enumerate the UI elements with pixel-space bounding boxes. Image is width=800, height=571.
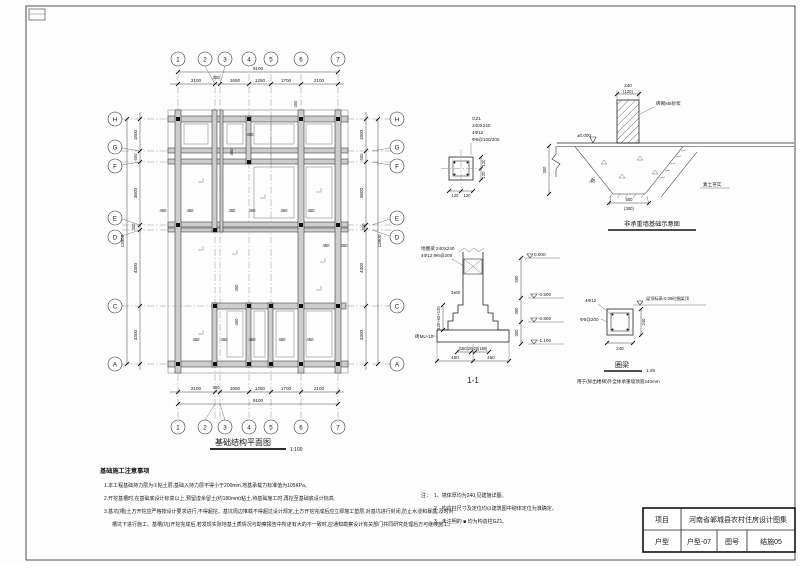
- grid-bubble-C: C: [395, 304, 400, 311]
- dim-label: 1800: [133, 129, 138, 140]
- dim-label: 300: [361, 223, 366, 231]
- level-1: -0.500: [538, 292, 551, 297]
- dim-label: 240: [641, 318, 646, 326]
- pit-outline: [575, 147, 683, 195]
- nb-title-text: 非承重墙基础示意图: [624, 220, 680, 228]
- dim-label: 4300: [359, 262, 364, 273]
- grid-bubble-6: 6: [299, 57, 303, 64]
- dim-label: 2100: [191, 78, 202, 83]
- grid-bubble-E: E: [113, 216, 117, 223]
- grid-bubble-F: F: [395, 164, 399, 171]
- dim-450: 450: [234, 318, 239, 326]
- nb-angle-label: 45°: [589, 175, 597, 183]
- ring-beam-detail: 4Φ12 Φ6@200 梁顶标高-0.05砼圈梁顶 240 240 圈梁 1:2…: [577, 295, 706, 385]
- grid-bubble-7: 7: [336, 425, 340, 432]
- note-3-line1: 3.基坑(槽)土方开挖应严格按设计要求进行,不得超挖。基坑周边堆载不得超过设计规…: [104, 508, 453, 515]
- dim-label: 300: [213, 75, 221, 80]
- grid-bubbles-bottom: 1 2 3 4 5 6 7: [171, 404, 345, 434]
- gz1-size: 240X240: [472, 123, 491, 128]
- dim-label: 450: [451, 355, 459, 360]
- grid-bubble-1: 1: [176, 425, 180, 432]
- dim-label: 120+60+120: [436, 306, 441, 330]
- grid-bubble-2: 2: [203, 57, 207, 64]
- nb-level-label: ±0.000: [577, 133, 591, 138]
- nonbearing-foundation-detail: 240 (120) 砖砌M5砂浆 ±0.000 45° 素土夯实 500 (30…: [542, 83, 794, 230]
- grid-bubble-H: H: [113, 117, 117, 124]
- plan-scale: 1:100: [290, 447, 303, 453]
- titleblock-project: 河南省郸城县农村住房设计图集: [689, 515, 787, 524]
- ring-note: 用于(除出楼梯)外全体承重墙顶宽240mm: [577, 378, 660, 385]
- gz1-detail: GZ1 240X240 4Φ12 Φ6@100/200 120 120 120 …: [441, 116, 500, 198]
- titleblock-model: 户型-07: [687, 537, 711, 546]
- grid-bubble-3: 3: [223, 57, 227, 64]
- dim-label: 1650: [230, 386, 241, 391]
- s11-right-dims: 500 300 300: [514, 256, 523, 346]
- dim-label: 2100: [314, 386, 325, 391]
- remark-prefix: 注：: [421, 492, 431, 499]
- ring-rebar-label: 4Φ12: [585, 298, 597, 303]
- foundation-walls: [168, 110, 348, 373]
- dim-label: 1650: [230, 78, 241, 83]
- dim-450: 450: [279, 337, 287, 342]
- plan-title: 基础结构平面图 1:100: [210, 437, 303, 453]
- dim-450: 450: [341, 243, 349, 248]
- ring-level-note: 梁顶标高-0.05砼圈梁顶: [646, 295, 690, 302]
- dim-450: 450: [221, 337, 229, 342]
- dim-450: 450: [229, 208, 237, 213]
- level-2: -0.800: [538, 316, 551, 321]
- dim-label: 1700: [281, 386, 292, 391]
- dim-label: 1800: [359, 129, 364, 140]
- dims-right: 1800 600 3600 300 4300 3300 13900: [359, 112, 382, 370]
- gz1-columns: [176, 117, 340, 366]
- grid-bubble-4: 4: [247, 425, 251, 432]
- level-symbol: [637, 301, 643, 305]
- grid-bubble-G: G: [113, 145, 118, 152]
- dim-450: 450: [308, 208, 316, 213]
- dim-label: 500: [626, 197, 634, 202]
- dim-label: 3600: [359, 187, 364, 198]
- dim-label: 4300: [133, 262, 138, 273]
- border-corner-mark: [29, 9, 45, 20]
- dim-label: 600: [133, 153, 138, 161]
- dim-label: 1250: [255, 78, 266, 83]
- dim-label: 300: [514, 329, 519, 337]
- grid-bubble-C: C: [113, 304, 118, 311]
- dim-450: 450: [249, 208, 257, 213]
- dim-total-width: 9100: [253, 66, 264, 71]
- nb-soil-label: 素土夯实: [703, 181, 722, 188]
- dim-label: 300: [514, 307, 519, 315]
- dim-label: 1250: [255, 386, 266, 391]
- grid-bubble-D: D: [395, 235, 400, 242]
- dim-label: 120: [464, 193, 472, 198]
- ring-stirrup-label: Φ6@200: [580, 317, 599, 322]
- s11-beam-label-1: 地圈梁 240X240: [421, 245, 455, 252]
- dim-450: 450: [187, 208, 195, 213]
- dim-label: 3300: [359, 329, 364, 340]
- dim-450: 450: [307, 337, 315, 342]
- note-1: 1.本工程基础持力层为①粘土层,基础入持力层不得小于200mm,地基承载力标准值…: [104, 482, 310, 489]
- nb-title: 非承重墙基础示意图: [608, 220, 696, 230]
- dim-label: 120: [481, 159, 486, 167]
- dim-label: 3300: [133, 329, 138, 340]
- dim-total-width: 9100: [253, 398, 264, 403]
- gz1-rebar: 4Φ12: [472, 130, 484, 135]
- dim-label: 300: [213, 385, 221, 390]
- dim-label: 240: [624, 83, 632, 88]
- dim-label: 120: [452, 193, 460, 198]
- ring-scale: 1:25: [646, 368, 655, 373]
- dim-total-height: 13900: [377, 234, 382, 247]
- dim-label: 2100: [191, 386, 202, 391]
- grid-bubble-F: F: [113, 164, 117, 171]
- construction-notes: 基础施工注意事项 1.本工程基础持力层为①粘土层,基础入持力层不得小于200mm…: [99, 467, 453, 528]
- stepped-footing: [437, 252, 509, 330]
- note-3-line2: 槽坑下进行施工。基槽(坑)开挖完成后,若发现实际地基土质情况与勘察报告中所述有大…: [112, 521, 453, 528]
- s11-step-dim: 120+60+120: [436, 303, 445, 332]
- dim-450: 450: [160, 208, 168, 213]
- sheet-border: [26, 6, 795, 560]
- dims-top: 2100 300 1650 1250 1700 2100 9100: [170, 66, 344, 86]
- dim-450: 450: [323, 243, 331, 248]
- dim-450: 450: [293, 100, 298, 108]
- gz1-name: GZ1: [472, 116, 481, 121]
- break-line: [459, 248, 484, 252]
- nb-bottom-dim: 500 (300): [607, 196, 651, 211]
- dim-450: 450: [249, 337, 257, 342]
- dim-label: 450: [487, 355, 495, 360]
- dim-label: 3600: [133, 187, 138, 198]
- dim-label: 120: [481, 171, 486, 179]
- remark-1: 1、墙体厚均为240,见建施详图。: [434, 492, 507, 499]
- dim-450: 450: [193, 337, 201, 342]
- grid-axes: [122, 74, 392, 420]
- dim-450: 450: [229, 148, 234, 156]
- nb-depth-dim: 300: [542, 144, 551, 196]
- dim-450: 450: [247, 132, 255, 137]
- dim-label: 300: [131, 223, 136, 231]
- drawing-sheet: 450 450 450 450 450 450 450 450 450 450 …: [0, 0, 800, 566]
- grid-bubble-5: 5: [269, 57, 273, 64]
- nb-top-dim: 240 (120): [615, 83, 641, 100]
- grid-bubble-E: E: [395, 216, 399, 223]
- s11-brick-label: 砖MU-10: [415, 333, 434, 340]
- grid-bubble-1: 1: [176, 57, 180, 64]
- dim-label: 600: [359, 153, 364, 161]
- grid-bubble-A: A: [395, 362, 400, 369]
- grid-bubble-5: 5: [269, 425, 273, 432]
- s11-steps-label: 3x60: [451, 290, 461, 295]
- break-line: [552, 146, 560, 177]
- titleblock-label-model: 户型: [655, 537, 669, 546]
- dim-450: 450: [281, 208, 289, 213]
- s11-levels: 0.000 -0.500 -0.800 -1.100: [524, 252, 564, 344]
- dim-450: 450: [234, 284, 239, 292]
- title-block: 项目 河南省郸城县农村住房设计图集 户型 户型-07 图号 结施05: [643, 508, 795, 552]
- grid-bubble-4: 4: [247, 57, 251, 64]
- plan-title-text: 基础结构平面图: [215, 437, 271, 447]
- drawing-canvas: 450 450 450 450 450 450 450 450 450 450 …: [0, 0, 800, 566]
- notes-title: 基础施工注意事项: [99, 467, 150, 475]
- titleblock-no: 结施05: [760, 537, 782, 546]
- s11-beam-label-2: 4Φ12;Φ6@200: [421, 253, 453, 258]
- foundation-plan: 450 450 450 450 450 450 450 450 450 450 …: [108, 52, 404, 453]
- ring-title-text: 圈梁: [615, 360, 629, 369]
- grid-bubble-D: D: [113, 235, 118, 242]
- remark-3: 3、未注明的 ■ 均为构造柱GZ1。: [434, 518, 507, 525]
- grid-bubble-H: H: [395, 117, 399, 124]
- note-2: 2.开挖基槽时,在基础底设计标高以上,预留虚余留土(约180mm)粘土,待基础施…: [104, 495, 335, 502]
- aggregate-marks: [589, 156, 658, 182]
- titleblock-label-no: 图号: [725, 538, 739, 546]
- s11-title: 1-1: [467, 376, 479, 385]
- dim-label: 300: [542, 166, 547, 174]
- s11-bottom-dims: |180|20|20|180| 450 450: [435, 342, 511, 363]
- nb-masonry-label: 砖砌M5砂浆: [656, 100, 681, 107]
- grid-bubble-2: 2: [203, 425, 207, 432]
- grid-bubble-A: A: [113, 362, 118, 369]
- dim-label: (300): [624, 206, 634, 211]
- remark-notes: 注： 1、墙体厚均为240,见建施详图。 2、构造柱尺寸及定位均以建筑图中砌体定…: [421, 492, 557, 525]
- level-0: 0.000: [534, 252, 546, 257]
- dim-label: 500: [514, 275, 519, 283]
- dim-label: 1700: [281, 78, 292, 83]
- gz1-stirrup: Φ6@100/200: [472, 137, 500, 142]
- ring-title: 圈梁 1:25: [604, 360, 655, 373]
- dim-label: 240: [616, 346, 624, 351]
- grid-bubble-3: 3: [223, 425, 227, 432]
- grid-bubble-7: 7: [336, 57, 340, 64]
- section-1-1: 地圈梁 240X240 4Φ12;Φ6@200 3x60 120+60+120 …: [415, 245, 564, 385]
- remark-2: 2、构造柱尺寸及定位均以建筑图中砌体定位为准确定。: [434, 505, 557, 512]
- grid-bubble-6: 6: [299, 425, 303, 432]
- dims-bottom: 2100 300 1650 1250 1700 2100 9100: [170, 385, 344, 406]
- grid-bubble-G: G: [395, 145, 400, 152]
- titleblock-label-project: 项目: [655, 516, 669, 524]
- level-3: -1.100: [538, 338, 551, 343]
- dim-label: (120): [623, 89, 633, 94]
- dim-label: 2100: [314, 78, 325, 83]
